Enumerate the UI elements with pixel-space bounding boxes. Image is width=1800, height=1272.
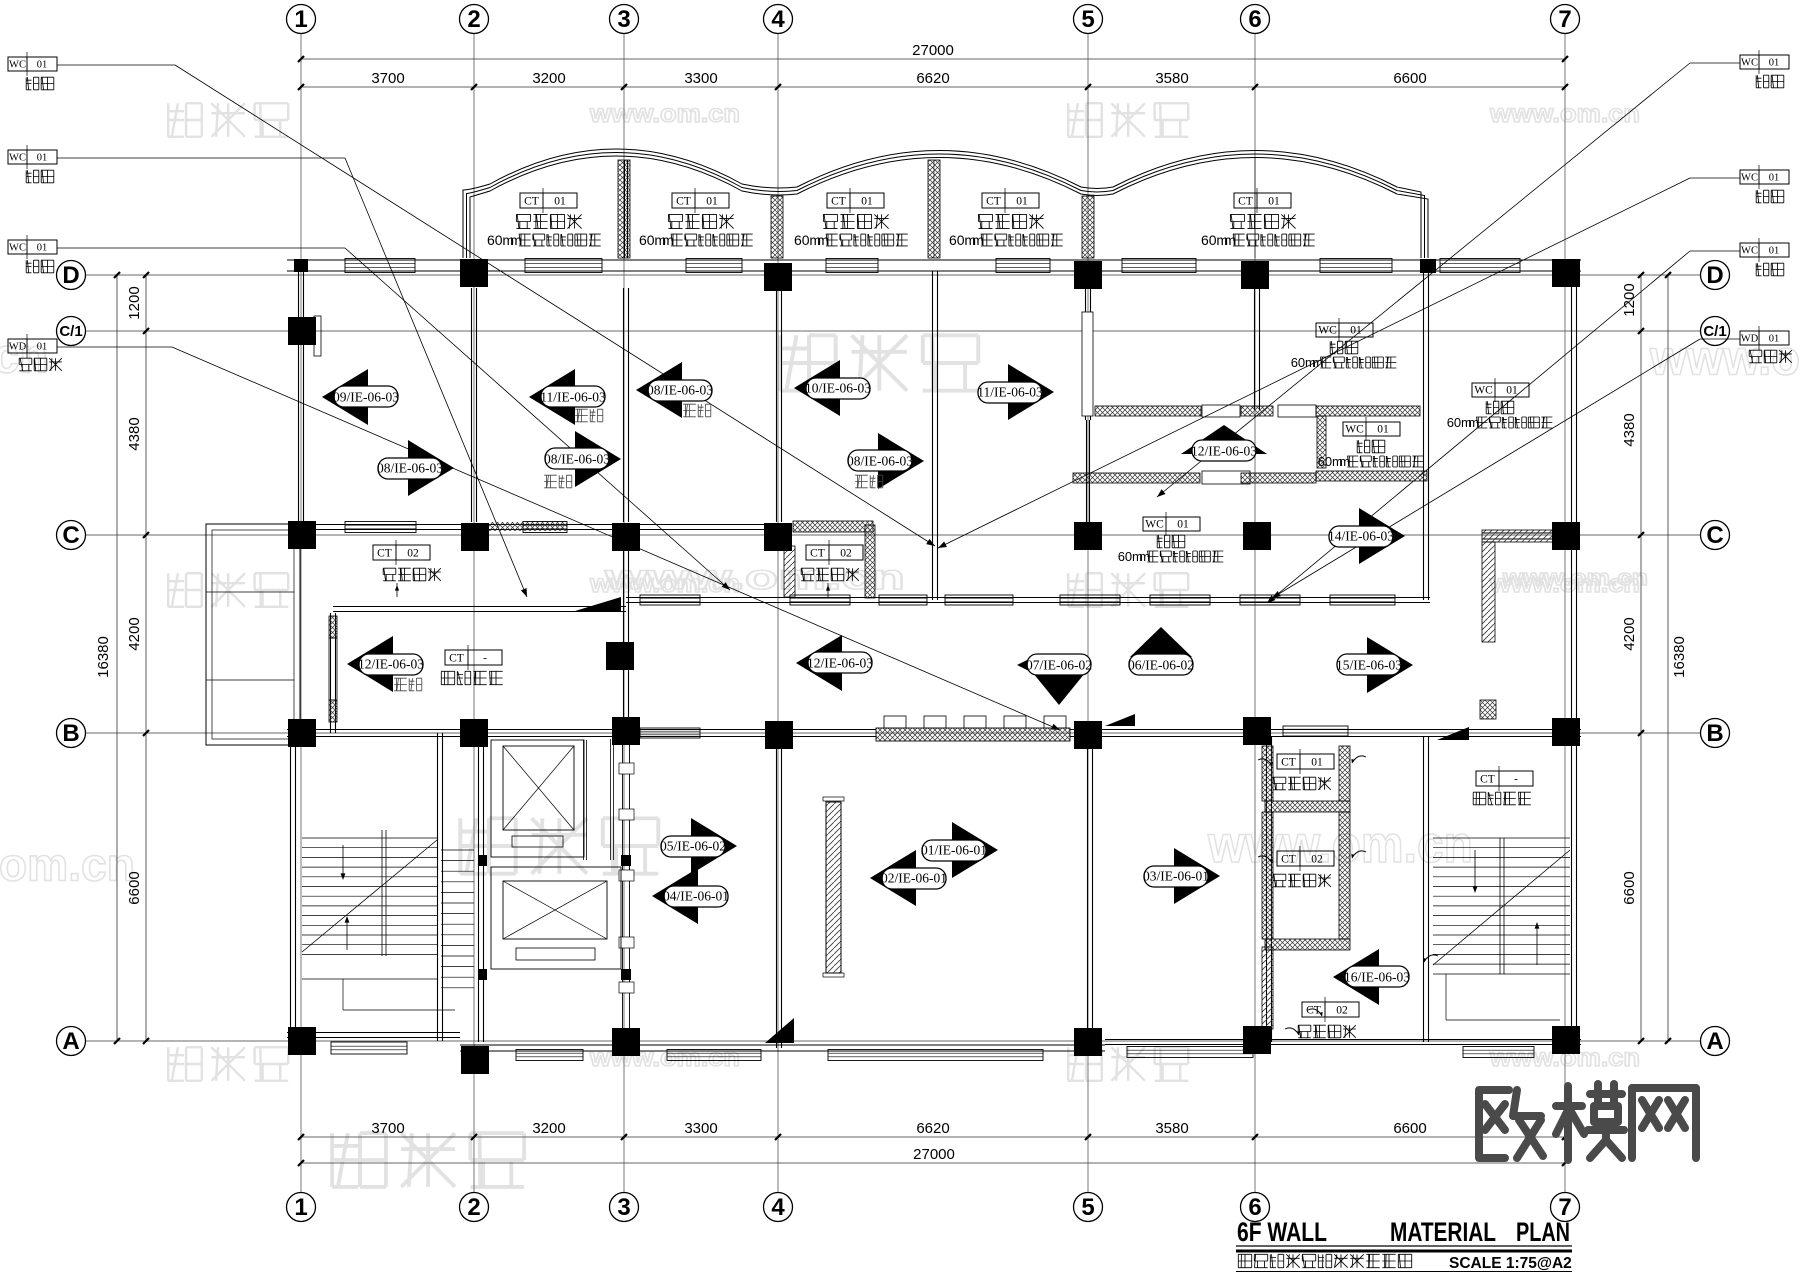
svg-text:16/IE-06-03: 16/IE-06-03 bbox=[1344, 970, 1410, 985]
svg-text:WD: WD bbox=[9, 342, 27, 353]
svg-text:3200: 3200 bbox=[532, 70, 565, 87]
svg-text:5: 5 bbox=[1081, 1194, 1094, 1221]
svg-text:CT: CT bbox=[1306, 1005, 1321, 1017]
svg-text:WC: WC bbox=[9, 60, 26, 71]
svg-text:CT: CT bbox=[524, 196, 539, 208]
svg-text:5: 5 bbox=[1081, 6, 1094, 33]
svg-text:04/IE-06-01: 04/IE-06-01 bbox=[663, 889, 729, 904]
svg-text:C/1: C/1 bbox=[59, 323, 82, 340]
svg-text:B: B bbox=[62, 720, 79, 747]
svg-text:1: 1 bbox=[294, 6, 307, 33]
svg-text:12/IE-06-03: 12/IE-06-03 bbox=[1191, 444, 1257, 459]
svg-text:6: 6 bbox=[1447, 415, 1454, 430]
svg-text:CT: CT bbox=[1281, 757, 1296, 769]
svg-text:3300: 3300 bbox=[684, 70, 717, 87]
svg-text:3300: 3300 bbox=[684, 1120, 717, 1137]
svg-text:-: - bbox=[1514, 774, 1518, 786]
svg-text:6620: 6620 bbox=[916, 1120, 949, 1137]
svg-text:2: 2 bbox=[467, 6, 480, 33]
svg-text:C: C bbox=[1706, 522, 1723, 549]
svg-text:01: 01 bbox=[37, 153, 48, 164]
svg-text:7: 7 bbox=[1558, 6, 1571, 33]
svg-text:3: 3 bbox=[617, 1194, 630, 1221]
svg-text:01: 01 bbox=[1377, 424, 1389, 436]
svg-text:4380: 4380 bbox=[126, 417, 143, 450]
svg-text:03/IE-06-01: 03/IE-06-01 bbox=[1143, 869, 1209, 884]
svg-text:05/IE-06-02: 05/IE-06-02 bbox=[660, 839, 726, 854]
svg-text:4200: 4200 bbox=[126, 617, 143, 650]
svg-text:WC: WC bbox=[1474, 385, 1493, 397]
svg-text:4200: 4200 bbox=[1621, 617, 1638, 650]
svg-text:4: 4 bbox=[771, 6, 785, 33]
svg-text:D: D bbox=[1706, 262, 1723, 289]
svg-text:1200: 1200 bbox=[126, 286, 143, 319]
svg-text:C: C bbox=[62, 522, 79, 549]
svg-text:6: 6 bbox=[1118, 549, 1125, 564]
svg-text:WD: WD bbox=[1741, 334, 1759, 345]
svg-text:08/IE-06-03: 08/IE-06-03 bbox=[544, 452, 610, 467]
svg-text:01: 01 bbox=[1350, 325, 1362, 337]
svg-text:01: 01 bbox=[861, 196, 873, 208]
svg-text:www.om.cn: www.om.cn bbox=[0, 328, 48, 383]
svg-text:3200: 3200 bbox=[532, 1120, 565, 1137]
svg-text:01: 01 bbox=[1769, 246, 1780, 257]
svg-text:01: 01 bbox=[1769, 173, 1780, 184]
svg-text:09/IE-06-03: 09/IE-06-03 bbox=[333, 390, 399, 405]
svg-text:www.om.cn: www.om.cn bbox=[1489, 101, 1640, 128]
svg-text:10/IE-06-03: 10/IE-06-03 bbox=[805, 381, 871, 396]
svg-text:01: 01 bbox=[1016, 196, 1028, 208]
svg-text:15/IE-06-03: 15/IE-06-03 bbox=[1336, 658, 1402, 673]
svg-text:08/IE-06-03: 08/IE-06-03 bbox=[847, 454, 913, 469]
svg-text:01: 01 bbox=[1311, 757, 1323, 769]
svg-text:02: 02 bbox=[1311, 854, 1323, 866]
svg-text:6620: 6620 bbox=[916, 70, 949, 87]
svg-text:CT: CT bbox=[831, 196, 846, 208]
svg-text:CT: CT bbox=[449, 653, 464, 665]
svg-text:CT: CT bbox=[377, 548, 392, 560]
svg-text:CT: CT bbox=[1480, 774, 1495, 786]
svg-text:01: 01 bbox=[1268, 196, 1280, 208]
svg-text:www.om.cn: www.om.cn bbox=[603, 558, 905, 597]
svg-text:08/IE-06-03: 08/IE-06-03 bbox=[647, 383, 713, 398]
svg-text:6600: 6600 bbox=[126, 871, 143, 904]
svg-text:CT: CT bbox=[676, 196, 691, 208]
svg-text:12/IE-06-03: 12/IE-06-03 bbox=[807, 656, 873, 671]
svg-text:B: B bbox=[1706, 720, 1723, 747]
svg-text:WC: WC bbox=[1318, 325, 1337, 337]
svg-text:CT: CT bbox=[1281, 854, 1296, 866]
svg-text:6600: 6600 bbox=[1393, 1120, 1426, 1137]
svg-text:WC: WC bbox=[1741, 173, 1758, 184]
svg-text:27000: 27000 bbox=[913, 1146, 955, 1163]
svg-text:08/IE-06-03: 08/IE-06-03 bbox=[377, 461, 443, 476]
svg-text:1200: 1200 bbox=[1621, 283, 1638, 316]
svg-text:WC: WC bbox=[1741, 246, 1758, 257]
svg-text:6600: 6600 bbox=[1621, 871, 1638, 904]
svg-text:WC: WC bbox=[9, 153, 26, 164]
svg-text:WC: WC bbox=[1345, 424, 1364, 436]
svg-text:01: 01 bbox=[37, 243, 48, 254]
svg-text:www.om.cn: www.om.cn bbox=[0, 838, 135, 890]
svg-text:01: 01 bbox=[706, 196, 718, 208]
svg-text:6: 6 bbox=[1318, 454, 1325, 469]
svg-text:WC: WC bbox=[9, 243, 26, 254]
svg-text:6F WALL: 6F WALL bbox=[1237, 1217, 1327, 1247]
svg-text:01: 01 bbox=[554, 196, 566, 208]
svg-text:CT: CT bbox=[986, 196, 1001, 208]
svg-text:6600: 6600 bbox=[1393, 70, 1426, 87]
svg-text:2: 2 bbox=[467, 1194, 480, 1221]
svg-text:1: 1 bbox=[294, 1194, 307, 1221]
svg-text:MATERIAL: MATERIAL bbox=[1390, 1217, 1496, 1247]
svg-text:01: 01 bbox=[1506, 385, 1518, 397]
svg-text:PLAN: PLAN bbox=[1516, 1217, 1570, 1247]
svg-text:6: 6 bbox=[1291, 355, 1298, 370]
svg-text:14/IE-06-03: 14/IE-06-03 bbox=[1328, 529, 1394, 544]
svg-text:www.om.cn: www.om.cn bbox=[1502, 565, 1648, 590]
svg-text:www.om.cn: www.om.cn bbox=[589, 101, 740, 128]
svg-text:CT: CT bbox=[810, 548, 825, 560]
svg-text:02/IE-06-01: 02/IE-06-01 bbox=[881, 871, 947, 886]
svg-text:12/IE-06-03: 12/IE-06-03 bbox=[358, 657, 424, 672]
svg-text:01: 01 bbox=[1769, 58, 1780, 69]
svg-text:07/IE-06-02: 07/IE-06-02 bbox=[1026, 658, 1092, 673]
svg-text:4: 4 bbox=[771, 1194, 785, 1221]
svg-text:SCALE 1:75@A2: SCALE 1:75@A2 bbox=[1449, 1255, 1572, 1272]
svg-text:3700: 3700 bbox=[371, 1120, 404, 1137]
svg-text:11/IE-06-03: 11/IE-06-03 bbox=[540, 390, 606, 405]
svg-text:01/IE-06-01: 01/IE-06-01 bbox=[921, 843, 987, 858]
svg-text:02: 02 bbox=[840, 548, 852, 560]
svg-text:C/1: C/1 bbox=[1703, 323, 1726, 340]
svg-text:3580: 3580 bbox=[1155, 70, 1188, 87]
svg-text:3700: 3700 bbox=[371, 70, 404, 87]
svg-text:-: - bbox=[483, 653, 487, 665]
svg-text:3: 3 bbox=[617, 6, 630, 33]
svg-text:4380: 4380 bbox=[1621, 413, 1638, 446]
svg-text:01: 01 bbox=[1769, 334, 1780, 345]
svg-text:D: D bbox=[62, 262, 79, 289]
svg-text:16380: 16380 bbox=[95, 636, 112, 678]
svg-text:11/IE-06-03: 11/IE-06-03 bbox=[977, 385, 1043, 400]
svg-text:3580: 3580 bbox=[1155, 1120, 1188, 1137]
svg-text:02: 02 bbox=[407, 548, 419, 560]
svg-text:01: 01 bbox=[37, 342, 48, 353]
svg-text:CT: CT bbox=[1238, 196, 1253, 208]
svg-text:A: A bbox=[62, 1028, 79, 1055]
svg-text:16380: 16380 bbox=[1671, 636, 1688, 678]
svg-text:6: 6 bbox=[1248, 6, 1261, 33]
svg-text:02: 02 bbox=[1336, 1005, 1348, 1017]
svg-text:06/IE-06-02: 06/IE-06-02 bbox=[1128, 658, 1194, 673]
svg-text:WC: WC bbox=[1741, 58, 1758, 69]
svg-text:27000: 27000 bbox=[912, 42, 954, 59]
svg-text:01: 01 bbox=[37, 60, 48, 71]
svg-text:A: A bbox=[1706, 1028, 1723, 1055]
svg-text:WC: WC bbox=[1145, 519, 1164, 531]
svg-text:01: 01 bbox=[1177, 519, 1189, 531]
